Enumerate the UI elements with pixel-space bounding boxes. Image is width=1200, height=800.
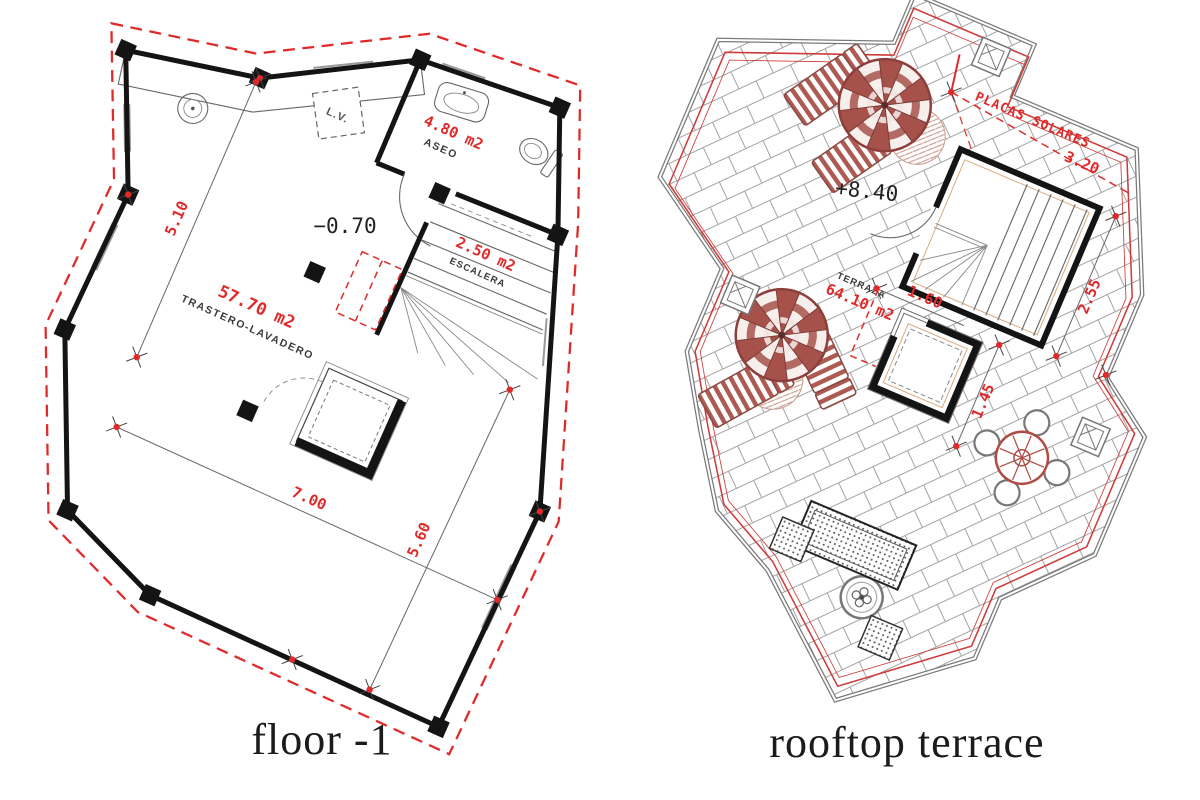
floor-minus1-caption: floor -1 bbox=[251, 714, 392, 765]
floor-minus1-plan: L.V. 4.80 m2 AS bbox=[0, 0, 600, 800]
rooftop-terrace-caption: rooftop terrace bbox=[769, 717, 1044, 768]
floor-slab bbox=[0, 0, 600, 729]
floorplan-sheet: L.V. 4.80 m2 AS bbox=[0, 0, 1200, 800]
rooftop-terrace-plan: PLACAS SOLARES 3.20 TERRAZA 64.10 m2 2.5… bbox=[600, 0, 1200, 800]
level-label-floor1: −0.70 bbox=[313, 214, 376, 238]
